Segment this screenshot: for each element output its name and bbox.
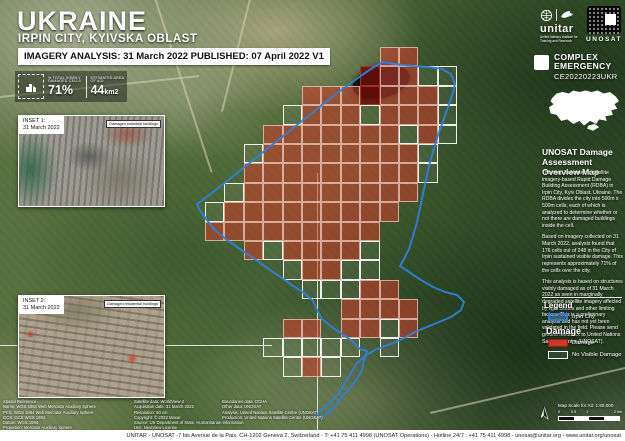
grid-cell-damage (302, 260, 321, 279)
grid-cell-damage (244, 163, 263, 182)
grid-cell-damage (224, 202, 243, 221)
grid-cell-no-visible-damage (341, 280, 360, 299)
grid-cell-damage (380, 47, 399, 66)
unitar-tagline: United Nations Institute for Training an… (540, 36, 580, 43)
grid-cell-damage (283, 144, 302, 163)
grid-cell-damage (360, 163, 379, 182)
grid-cell-no-visible-damage (283, 338, 302, 357)
legend-divider (542, 297, 622, 298)
unitar-wordmark: unitar (540, 24, 580, 35)
grid-cell-damage (341, 241, 360, 260)
grid-cell-damage (263, 183, 282, 202)
sidebar-paragraph: This map illustrates a satellite imagery… (542, 170, 623, 229)
grid-cell-no-visible-damage (438, 125, 457, 144)
unosat-logo: UNOSAT (586, 6, 622, 43)
grid-cell-damage (341, 105, 360, 124)
grid-cell-damage (283, 202, 302, 221)
grid-cell-damage (263, 144, 282, 163)
map-scale-text: Map Scale for A3: 1:60,000 (558, 403, 613, 408)
grid-cell-damage (302, 105, 321, 124)
grid-cell-damage (399, 86, 418, 105)
grid-cell-damage (341, 144, 360, 163)
grid-cell-damage (380, 163, 399, 182)
unosat-pixel-square (605, 14, 616, 25)
emergency-type: COMPLEX EMERGENCY (554, 53, 618, 71)
ukraine-silhouette-icon (546, 84, 622, 137)
inset-label-title: INSET 2: (23, 298, 60, 305)
grid-cell-damage (283, 319, 302, 338)
grid-cell-damage (321, 183, 340, 202)
grid-cell-damage (341, 125, 360, 144)
imagery-analysis-banner: IMAGERY ANALYSIS: 31 March 2022 PUBLISHE… (18, 48, 330, 65)
grid-cell-damage (244, 241, 263, 260)
credit-line: Production: United Nations Satellite Cen… (222, 415, 322, 420)
grid-cell-damage (341, 183, 360, 202)
grid-cell-damage (321, 86, 340, 105)
grid-cell-damage (302, 202, 321, 221)
stat-area-unit: km2 (104, 89, 118, 96)
grid-cell-no-visible-damage (380, 319, 399, 338)
grid-cell-damage (341, 319, 360, 338)
grid-cell-no-visible-damage (438, 86, 457, 105)
grid-cell-no-visible-damage (283, 357, 302, 376)
grid-cell-damage (380, 125, 399, 144)
inset-1-callout: Damaged industrial buildings (106, 120, 161, 128)
legend-label: Irpin City (572, 314, 595, 320)
grid-cell-damage (399, 163, 418, 182)
inset-label-title: INSET 1: (23, 118, 60, 125)
grid-cell-no-visible-damage (438, 66, 457, 85)
grid-cell-damage (302, 144, 321, 163)
legend-item-damage: Damage (548, 339, 594, 347)
grid-cell-no-visible-damage (263, 241, 282, 260)
logo-divider (556, 9, 557, 21)
scalebar-segment (574, 417, 589, 420)
emergency-icon (534, 55, 549, 70)
stat-area-value: 44km2 (90, 84, 118, 97)
grid-cell-damage (302, 357, 321, 376)
inset-label-date: 31 March 2022 (23, 125, 60, 132)
sidebar-description: This map illustrates a satellite imagery… (542, 170, 623, 350)
grid-cell-damage-dark (360, 66, 379, 85)
grid-cell-damage (380, 183, 399, 202)
grid-cell-damage (380, 299, 399, 318)
north-arrow-icon (538, 405, 550, 428)
grid-cell-damage (283, 125, 302, 144)
grid-cell-damage (399, 299, 418, 318)
grid-cell-damage (302, 183, 321, 202)
unosat-pixel-icon (587, 6, 621, 34)
grid-cell-damage (341, 202, 360, 221)
grid-cell-damage (360, 319, 379, 338)
stats-divider (86, 76, 87, 98)
stat-area-number: 44 (90, 83, 104, 97)
grid-cell-damage (321, 202, 340, 221)
grid-cell-no-visible-damage (399, 125, 418, 144)
scale-tick: 0.5 (571, 410, 576, 414)
legend-item-irpin-city: Irpin City (548, 313, 595, 321)
footer-bar: UNITAR - UNOSAT -7 bis Avenue de la Paix… (0, 430, 625, 441)
grid-cell-no-visible-damage (224, 183, 243, 202)
dove-icon (560, 9, 575, 21)
grid-cell-damage (263, 222, 282, 241)
grid-cell-damage (399, 105, 418, 124)
grid-cell-damage (224, 222, 243, 241)
emergency-code: CE20220223UKR (554, 72, 618, 81)
grid-cell-no-visible-damage (360, 241, 379, 260)
grid-cell-damage (360, 202, 379, 221)
grid-cell-no-visible-damage (263, 338, 282, 357)
grid-cell-damage (360, 125, 379, 144)
irpin-city-swatch (548, 313, 568, 321)
credit-line: Analysis: United Nations Satellite Centr… (222, 410, 322, 415)
damage-stats-bar: % TOTAL VISIBLY DAMAGED CELLS 71% ESTIMA… (15, 71, 127, 102)
grid-cell-damage (341, 222, 360, 241)
legend-item-no-visible-damage: No Visible Damage (548, 351, 622, 359)
grid-cell-no-visible-damage (283, 260, 302, 279)
grid-cell-damage (360, 280, 379, 299)
grid-cell-damage (302, 86, 321, 105)
grid-cell-damage (341, 299, 360, 318)
grid-cell-damage (360, 144, 379, 163)
grid-cell-no-visible-damage (360, 105, 379, 124)
grid-cell-no-visible-damage (418, 163, 437, 182)
grid-cell-damage (360, 183, 379, 202)
map-page: UKRAINE IRPIN CITY, KYIVSKA OBLAST IMAGE… (0, 0, 625, 441)
grid-cell-damage (360, 299, 379, 318)
scale-tick: 0 (558, 410, 560, 414)
grid-cell-damage (302, 163, 321, 182)
grid-cell-damage (380, 280, 399, 299)
grid-cell-damage (302, 125, 321, 144)
un-emblem-icon (540, 9, 553, 22)
grid-cell-damage (283, 163, 302, 182)
damaged-building-icon (18, 74, 44, 99)
stat-damaged-value: 71% (48, 84, 73, 97)
grid-cell-no-visible-damage (302, 280, 321, 299)
scalebar (558, 416, 620, 421)
legend-title: Legend (544, 301, 572, 310)
grid-cell-damage (283, 183, 302, 202)
grid-cell-damage (263, 163, 282, 182)
grid-cell-damage (418, 125, 437, 144)
sidebar-paragraph: Based on imagery collected on 31 March 2… (542, 234, 623, 274)
grid-cell-damage (360, 222, 379, 241)
grid-cell-damage-dark (360, 86, 379, 105)
emergency-block: COMPLEX EMERGENCY CE20220223UKR (534, 53, 618, 81)
emergency-type-line2: EMERGENCY (554, 62, 618, 71)
grid-cell-damage (205, 222, 224, 241)
grid-cell-damage (321, 260, 340, 279)
stat-area: ESTIMATED AREA OF AOI 44km2 (90, 77, 124, 97)
scale-tick: 1 (586, 410, 588, 414)
stat-damaged-cells: % TOTAL VISIBLY DAMAGED CELLS 71% (48, 77, 82, 97)
grid-cell-no-visible-damage (341, 338, 360, 357)
scalebar-segment (604, 417, 619, 420)
grid-cell-damage (244, 183, 263, 202)
grid-cell-no-visible-damage (341, 260, 360, 279)
grid-cell-damage (263, 202, 282, 221)
grid-cell-damage (302, 319, 321, 338)
grid-cell-damage (244, 202, 263, 221)
grid-cell-damage (321, 144, 340, 163)
legend-label: No Visible Damage (572, 352, 622, 358)
grid-cell-damage (418, 105, 437, 124)
grid-cell-damage (399, 47, 418, 66)
grid-cell-no-visible-damage (418, 144, 437, 163)
grid-cell-damage (302, 222, 321, 241)
unosat-wordmark: UNOSAT (586, 36, 622, 43)
scale-tick: 2 km (614, 410, 622, 414)
grid-cell-no-visible-damage (360, 260, 379, 279)
grid-cell-damage (380, 105, 399, 124)
grid-cell-damage (263, 125, 282, 144)
inset-label-date: 31 March 2022 (23, 305, 60, 312)
grid-cell-no-visible-damage (302, 338, 321, 357)
grid-cell-damage (321, 105, 340, 124)
scalebar-segment (559, 417, 574, 420)
scalebar-ticks: 0 0.5 1 2 km (558, 410, 624, 415)
grid-cell-damage (399, 183, 418, 202)
inset-2-callout: Damaged residential buildings (104, 300, 161, 308)
credits-satellite-data: Satellite data: WorldView-2Acquisition d… (134, 399, 220, 431)
grid-cell-damage (380, 202, 399, 221)
legend-label: Damage (572, 340, 594, 346)
inset-2-residential: INSET 2: 31 March 2022 Damaged residenti… (18, 295, 165, 398)
footer-contact-text: UNITAR - UNOSAT -7 bis Avenue de la Paix… (127, 433, 625, 439)
grid-cell-damage (302, 241, 321, 260)
grid-cell-damage (399, 144, 418, 163)
page-subtitle: IRPIN CITY, KYIVSKA OBLAST (18, 33, 197, 45)
unitar-logo: unitar United Nations Institute for Trai… (540, 8, 580, 43)
legend-damage-heading: Damage (546, 326, 581, 336)
grid-cell-damage (380, 144, 399, 163)
grid-cell-damage (321, 125, 340, 144)
grid-cell-damage (380, 86, 399, 105)
no-visible-damage-swatch (548, 351, 568, 359)
grid-cell-no-visible-damage (244, 144, 263, 163)
grid-cell-no-visible-damage (321, 357, 340, 376)
grid-cell-no-visible-damage (380, 338, 399, 357)
grid-cell-no-visible-damage (321, 280, 340, 299)
grid-cell-damage (321, 241, 340, 260)
grid-cell-no-visible-damage (438, 105, 457, 124)
inset-1-industrial: INSET 1: 31 March 2022 Damaged industria… (18, 115, 165, 207)
grid-cell-no-visible-damage (418, 66, 437, 85)
grid-cell-damage (283, 222, 302, 241)
credits-spatial-reference: Spatial ReferenceName: WGS 1984 Web Merc… (3, 399, 133, 431)
grid-cell-damage (418, 86, 437, 105)
grid-cell-damage (321, 222, 340, 241)
grid-cell-damage (244, 222, 263, 241)
grid-cell-damage (341, 86, 360, 105)
grid-cell-no-visible-damage (321, 338, 340, 357)
inset-2-label: INSET 2: 31 March 2022 (19, 296, 64, 314)
credits-production: Boundaries data: OCHAOther data: UNOSATA… (222, 399, 322, 420)
grid-cell-damage (399, 66, 418, 85)
inset-1-label: INSET 1: 31 March 2022 (19, 116, 64, 134)
grid-cell-damage (283, 241, 302, 260)
grid-cell-damage (380, 66, 399, 85)
scalebar-segment (589, 417, 604, 420)
grid-cell-damage (341, 163, 360, 182)
grid-cell-no-visible-damage (283, 105, 302, 124)
grid-cell-damage (399, 319, 418, 338)
damage-swatch (548, 339, 568, 347)
grid-cell-no-visible-damage (205, 202, 224, 221)
grid-cell-damage (321, 163, 340, 182)
